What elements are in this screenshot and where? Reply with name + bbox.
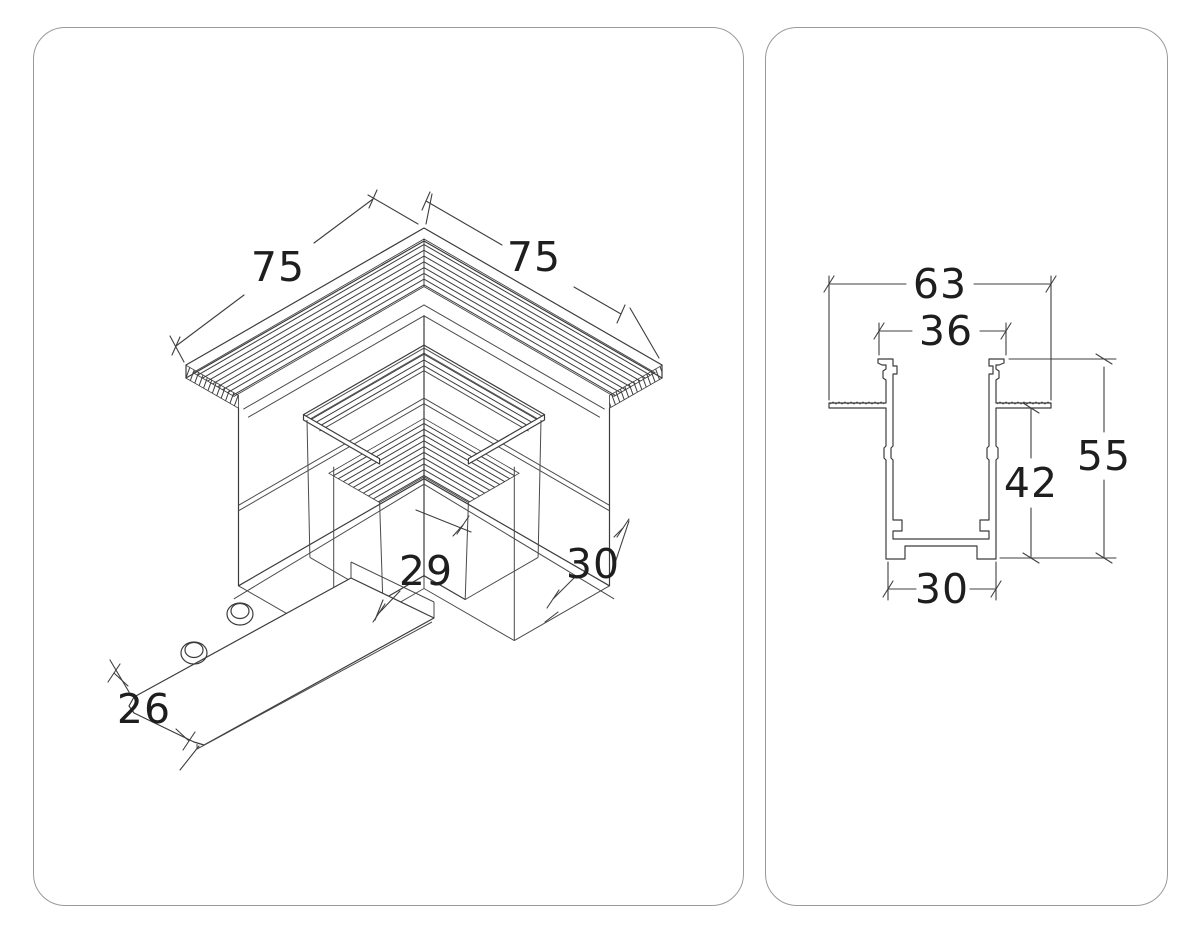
- cross-section-drawing: 63 36 55 42: [766, 28, 1169, 907]
- dim-value: 63: [913, 260, 967, 308]
- dim-value: 55: [1077, 432, 1131, 480]
- screw: [181, 642, 207, 664]
- right-panel: 63 36 55 42: [765, 27, 1168, 906]
- dim-value: 26: [117, 685, 171, 733]
- insert-end-face-right: [468, 415, 544, 464]
- dim-value: 29: [399, 547, 453, 595]
- isometric-drawing: 75 75 29 30: [34, 28, 745, 907]
- dim-value: 42: [1004, 459, 1058, 507]
- insert-lip-band-left: [307, 353, 424, 427]
- dim-value: 75: [507, 233, 561, 281]
- dim-30-base-width: 30: [883, 562, 1001, 613]
- mounting-plate: [129, 562, 434, 749]
- dim-36-opening-width: 36: [874, 307, 1011, 355]
- dim-30-outer-width: 30: [545, 519, 629, 622]
- dim-42-recess-depth: 42: [1004, 403, 1058, 563]
- screw: [227, 603, 253, 625]
- insert-end-face-left: [304, 415, 380, 464]
- left-panel: 75 75 29 30: [33, 27, 744, 906]
- dim-value: 75: [251, 243, 305, 291]
- drawing-sheet: 75 75 29 30: [0, 0, 1200, 933]
- dim-value: 36: [919, 307, 973, 355]
- dim-value: 30: [915, 565, 969, 613]
- dim-value: 30: [566, 540, 620, 588]
- insert-lip-band-right: [424, 353, 541, 427]
